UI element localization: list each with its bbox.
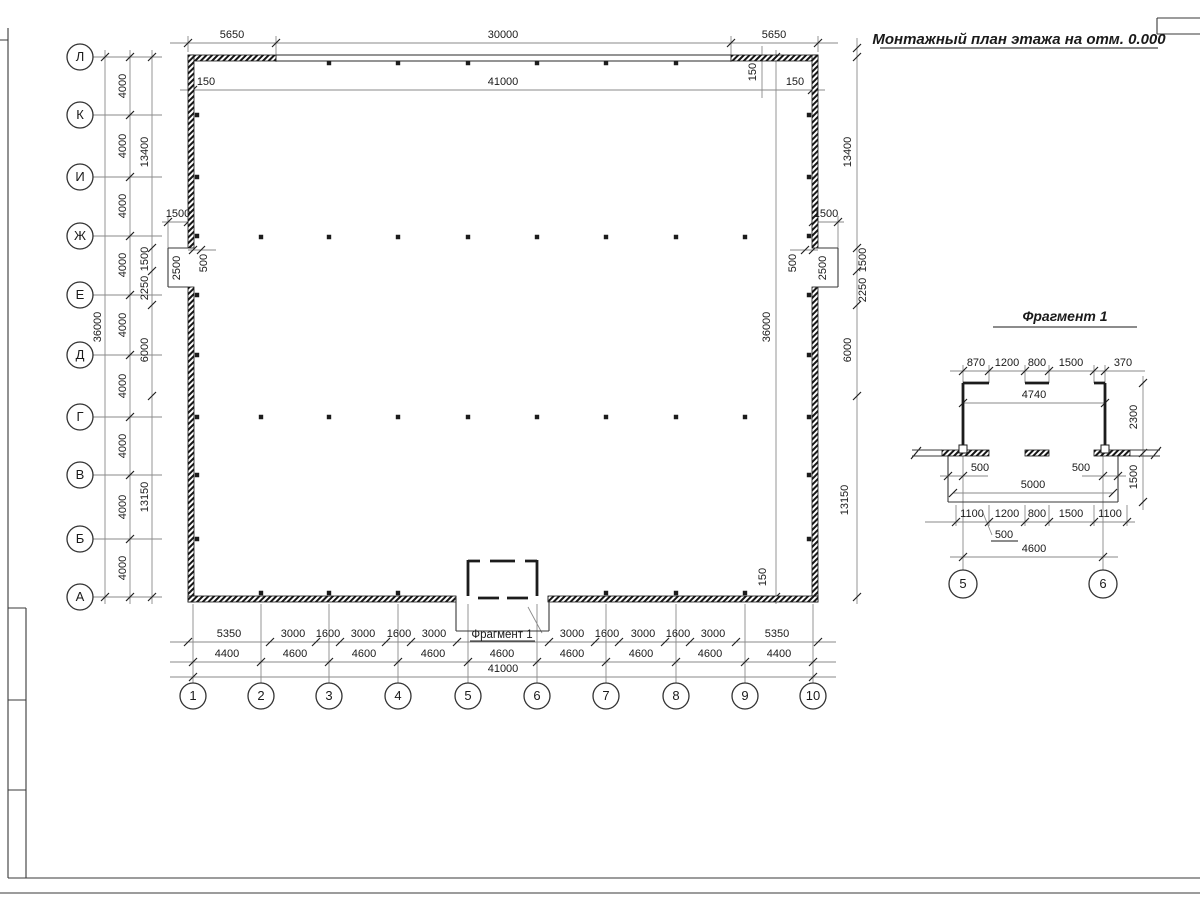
fragment-column-plate-right — [1101, 445, 1109, 453]
axis-label: 5 — [959, 576, 966, 591]
dim-label: 4000 — [117, 313, 129, 337]
dim-label: 1500 — [1059, 357, 1083, 369]
dim-label: 13150 — [139, 482, 151, 513]
dim-label: 4000 — [117, 74, 129, 98]
dim-label: 4600 — [1022, 543, 1046, 555]
axis-label: В — [76, 467, 85, 482]
fragment-column-plate-left — [959, 445, 967, 453]
dim-label: 1500 — [1128, 465, 1140, 489]
bottom-wall-left — [188, 596, 456, 602]
dim-label: 870 — [967, 357, 985, 369]
axis-label: Б — [76, 531, 85, 546]
dim-label: 800 — [1028, 357, 1046, 369]
dim-label: 1500 — [166, 208, 190, 220]
dim-label: 1500 — [139, 247, 151, 271]
dim-label: 3000 — [701, 628, 725, 640]
dim-label: 150 — [757, 568, 769, 586]
left-wall-lower — [188, 287, 194, 602]
dim-label: 150 — [747, 63, 759, 81]
dim-label: 6000 — [842, 338, 854, 362]
axis-label: 3 — [325, 688, 332, 703]
col-axis-labels: 1 2 3 4 5 6 7 8 9 10 — [189, 688, 820, 703]
dim-label: 4600 — [421, 648, 445, 660]
axis-label: И — [75, 169, 84, 184]
dim-label: 4000 — [117, 495, 129, 519]
dim-label: 4600 — [283, 648, 307, 660]
dim-label: 4600 — [490, 648, 514, 660]
axis-label: Д — [76, 347, 85, 362]
dim-label: 13150 — [839, 485, 851, 516]
dim-label: 41000 — [488, 663, 519, 675]
dim-label: 5650 — [762, 29, 786, 41]
fragment-callout: Фрагмент 1 — [471, 629, 532, 641]
axis-label: Г — [76, 409, 83, 424]
axis-label: 7 — [602, 688, 609, 703]
column-dots — [195, 61, 811, 595]
dim-label: 5350 — [765, 628, 789, 640]
dim-label: 1100 — [960, 508, 984, 520]
dim-label: 2300 — [1128, 405, 1140, 429]
dim-label: 41000 — [488, 76, 519, 88]
dim-label: 1600 — [595, 628, 619, 640]
floor-plan-drawing: Л К И Ж Е Д Г В Б А 1 2 3 4 5 6 7 8 9 10… — [0, 0, 1200, 900]
col-axis-bubbles — [180, 683, 826, 709]
axis-label: А — [76, 589, 85, 604]
bottom-dimensions: 5350 3000 1600 3000 1600 3000 3000 1600 … — [215, 628, 791, 675]
axis-label: 1 — [189, 688, 196, 703]
row-axis-labels: Л К И Ж Е Д Г В Б А — [74, 49, 86, 604]
dim-label: 1500 — [814, 208, 838, 220]
dim-label: 1100 — [1098, 508, 1122, 520]
dim-label: 1200 — [995, 508, 1019, 520]
dimension-lines — [93, 36, 1145, 683]
dim-label: 4000 — [117, 134, 129, 158]
dim-label: 500 — [1072, 462, 1090, 474]
dim-label: 4000 — [117, 194, 129, 218]
axis-label: 10 — [806, 688, 820, 703]
axis-label: Л — [76, 49, 85, 64]
dim-label: 800 — [1028, 508, 1046, 520]
dim-label: 4600 — [629, 648, 653, 660]
axis-label: 6 — [533, 688, 540, 703]
dim-label: 2500 — [171, 256, 183, 280]
sheet-frame-lines — [0, 18, 1200, 893]
dim-label: 1600 — [666, 628, 690, 640]
dim-label: 4740 — [1022, 389, 1046, 401]
top-wall-right-end — [731, 55, 818, 61]
fragment-wall-pier — [1025, 450, 1049, 456]
dim-label: 36000 — [92, 312, 104, 343]
vestibule-structure — [468, 383, 1105, 598]
dim-label: 500 — [971, 462, 989, 474]
dim-label: 3000 — [422, 628, 446, 640]
axis-label: 9 — [741, 688, 748, 703]
fragment-wall-right — [1094, 450, 1130, 456]
dim-label: 2250 — [857, 278, 869, 302]
axis-label: 4 — [394, 688, 401, 703]
dim-label: 4000 — [117, 374, 129, 398]
dim-label: 5350 — [217, 628, 241, 640]
dim-label: 2500 — [817, 256, 829, 280]
dim-label: 500 — [995, 529, 1013, 541]
dim-label: 30000 — [488, 29, 519, 41]
axis-label: К — [76, 107, 84, 122]
bottom-wall-right — [548, 596, 818, 602]
building-walls — [188, 55, 818, 602]
dim-label: 5650 — [220, 29, 244, 41]
dim-label: 1600 — [316, 628, 340, 640]
dim-label: 4600 — [698, 648, 722, 660]
detail-lines — [168, 248, 1160, 631]
dim-label: 3000 — [631, 628, 655, 640]
dim-label: 500 — [198, 254, 210, 272]
dim-label: 4600 — [560, 648, 584, 660]
dim-label: 4000 — [117, 434, 129, 458]
dim-label: 4000 — [117, 556, 129, 580]
fragment-wall — [942, 445, 1130, 456]
top-dimensions: 5650 30000 5650 150 41000 150 150 — [197, 29, 804, 88]
dim-label: 1600 — [387, 628, 411, 640]
drawing-title: Монтажный план этажа на отм. 0.000 — [872, 31, 1166, 48]
right-wall-lower — [812, 287, 818, 602]
row-axis-bubbles — [67, 44, 93, 610]
dim-label: 1500 — [857, 248, 869, 272]
dim-label: 13400 — [139, 137, 151, 168]
dim-label: 4000 — [117, 253, 129, 277]
dim-label: 3000 — [351, 628, 375, 640]
dim-label: 3000 — [560, 628, 584, 640]
dim-label: 4600 — [352, 648, 376, 660]
axis-label: 2 — [257, 688, 264, 703]
dim-label: 150 — [197, 76, 215, 88]
dim-label: 5000 — [1021, 479, 1045, 491]
dim-label: 500 — [787, 254, 799, 272]
axis-label: Ж — [74, 228, 86, 243]
dim-label: 3000 — [281, 628, 305, 640]
dim-label: 1500 — [1059, 508, 1083, 520]
dim-label: 6000 — [139, 338, 151, 362]
top-wall-left-end — [188, 55, 276, 61]
dim-label: 4400 — [215, 648, 239, 660]
dim-label: 4400 — [767, 648, 791, 660]
dim-label: 13400 — [842, 137, 854, 168]
dim-label: 370 — [1114, 357, 1132, 369]
fragment-title: Фрагмент 1 — [1022, 308, 1107, 324]
drawing-sheet: Л К И Ж Е Д Г В Б А 1 2 3 4 5 6 7 8 9 10… — [0, 0, 1200, 900]
dim-label: 1200 — [995, 357, 1019, 369]
top-wall-middle — [276, 55, 731, 61]
dim-label: 2250 — [139, 276, 151, 300]
axis-label: Е — [76, 287, 85, 302]
dim-label: 36000 — [761, 312, 773, 343]
axis-label: 5 — [464, 688, 471, 703]
axis-label: 8 — [672, 688, 679, 703]
axis-label: 6 — [1099, 576, 1106, 591]
dim-label: 150 — [786, 76, 804, 88]
